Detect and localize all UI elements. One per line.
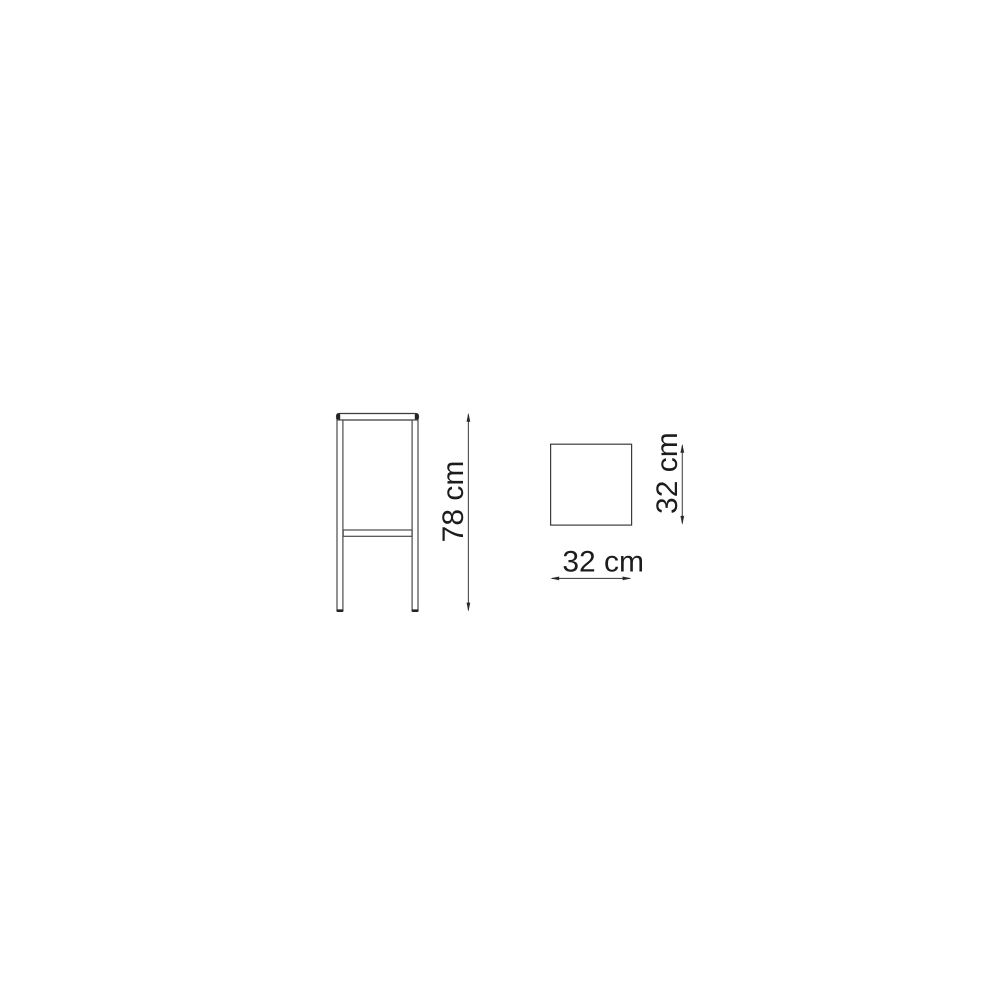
svg-text:32 cm: 32 cm xyxy=(562,545,644,578)
svg-text:78 cm: 78 cm xyxy=(437,461,470,543)
svg-text:32 cm: 32 cm xyxy=(651,432,684,514)
